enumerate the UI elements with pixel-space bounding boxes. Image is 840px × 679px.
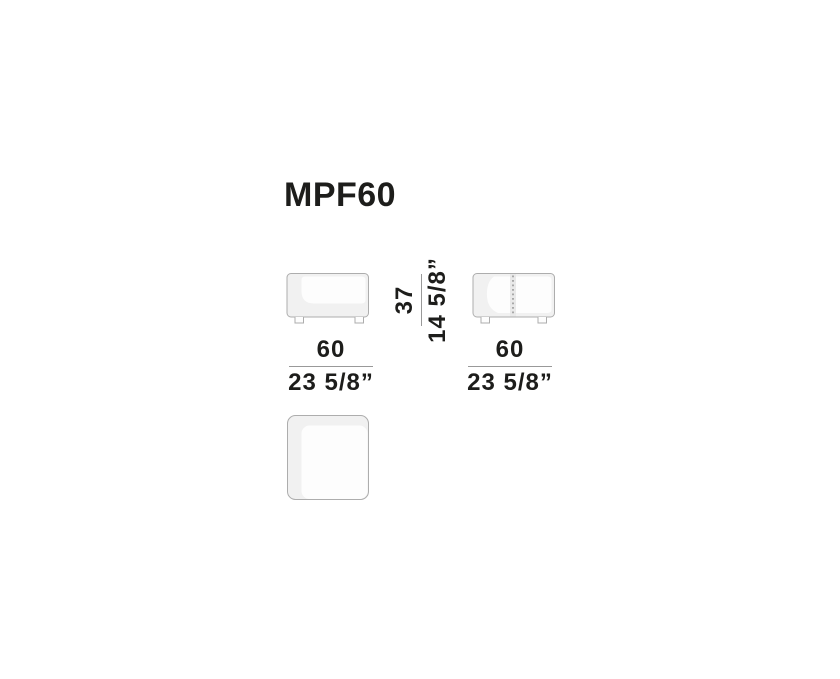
- height-dimension-imperial: 14 5/8”: [425, 240, 451, 360]
- side-foot-right: [538, 317, 547, 323]
- front-width-dimension-imperial: 23 5/8”: [271, 370, 391, 396]
- side-cushion-highlight: [487, 277, 552, 314]
- height-dimension-line: [421, 274, 422, 326]
- front-width-dimension-line: [289, 366, 373, 367]
- side-width-dimension-line: [468, 366, 552, 367]
- top-cushion-highlight: [302, 426, 368, 500]
- front-width-dimension-metric: 60: [271, 337, 391, 363]
- height-dimension-metric: 37: [392, 240, 418, 360]
- side-width-dimension-metric: 60: [450, 337, 570, 363]
- side-foot-left: [481, 317, 490, 323]
- height-dimension: 37 14 5/8”: [392, 240, 452, 360]
- product-spec-sheet: MPF60 37 14 5/8” 60 23 5/8” 60 23 5/8”: [0, 0, 840, 679]
- product-code-title: MPF60: [284, 178, 396, 212]
- front-view-drawing: [286, 272, 370, 325]
- front-foot-right: [355, 317, 364, 323]
- front-foot-left: [295, 317, 304, 323]
- front-width-dimension: 60 23 5/8”: [271, 337, 391, 396]
- side-width-dimension: 60 23 5/8”: [450, 337, 570, 396]
- top-view-drawing: [286, 414, 370, 501]
- side-width-dimension-imperial: 23 5/8”: [450, 370, 570, 396]
- front-cushion-highlight: [302, 277, 366, 304]
- side-view-drawing: [472, 272, 556, 325]
